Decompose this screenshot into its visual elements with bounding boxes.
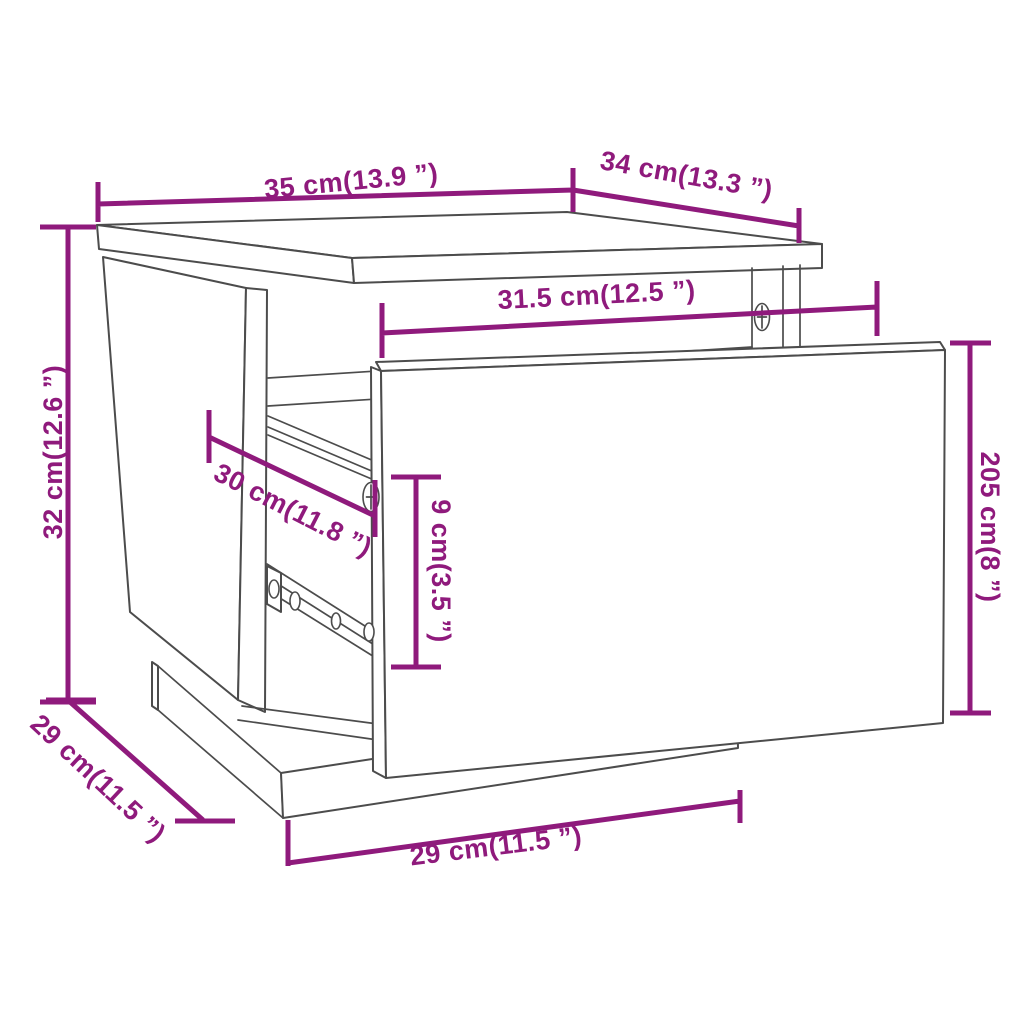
- dimension-label: 9 cm(3.5 ”): [426, 499, 456, 643]
- diagram-canvas: 35 cm(13.9 ”) 34 cm(13.3 ”) 31.5 cm(12.5…: [0, 0, 1024, 1024]
- cabinet-bottom-edge: [238, 706, 378, 740]
- cam-fitting-icon: [269, 580, 279, 598]
- drawer-slide-lower: [267, 564, 376, 658]
- dimension-base-depth: 29 cm(11.5 ”): [25, 700, 235, 848]
- plinth-left-face: [152, 662, 158, 710]
- dimension-label: 29 cm(11.5 ”): [408, 821, 583, 872]
- dimension-drawer-front-height: 205 cm(8 ”): [950, 343, 1005, 713]
- cam-fitting-icon: [364, 623, 374, 641]
- dimension-label: 205 cm(8 ”): [975, 451, 1005, 602]
- drawer-front-face: [381, 350, 945, 778]
- dimension-label: 32 cm(12.6 ”): [38, 365, 68, 540]
- technical-drawing: 35 cm(13.9 ”) 34 cm(13.3 ”) 31.5 cm(12.5…: [0, 0, 1024, 1024]
- cam-fitting-icon: [332, 613, 341, 629]
- dimension-overall-height: 32 cm(12.6 ”): [38, 227, 96, 702]
- dimension-label: 31.5 cm(12.5 ”): [497, 275, 696, 315]
- drawer-front-panel: [371, 342, 945, 778]
- dimension-inner-width: 31.5 cm(12.5 ”): [382, 275, 877, 358]
- dimension-top-width: 35 cm(13.9 ”): [98, 158, 573, 222]
- cam-fitting-icon: [290, 592, 300, 610]
